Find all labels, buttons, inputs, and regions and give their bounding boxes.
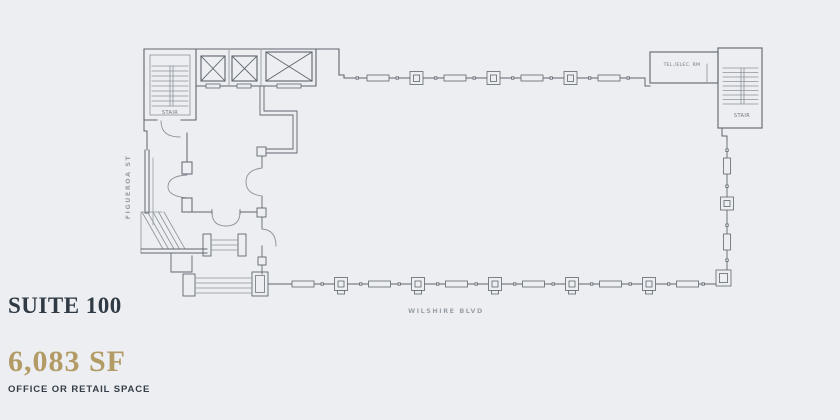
street-label-wilshire: WILSHIRE BLVD <box>408 308 484 315</box>
suite-info-panel: SUITE 100 6,083 SF OFFICE OR RETAIL SPAC… <box>8 294 228 395</box>
south-entry-steps <box>183 272 268 296</box>
north-wall-windows <box>356 72 629 85</box>
left-stair-treads <box>150 55 190 115</box>
suite-title: SUITE 100 <box>8 294 228 317</box>
street-label-figueroa: FIGUEROA ST <box>125 155 132 220</box>
tel-elec-room <box>645 52 718 86</box>
south-wall <box>268 278 716 295</box>
storefront-west <box>145 150 153 225</box>
tel-elec-label: TEL./ELEC. RM <box>663 62 701 68</box>
interior-partitions <box>168 133 256 226</box>
stair-left-label: STAIR <box>162 110 178 116</box>
vestibule-steps <box>203 234 246 256</box>
stair-right-label: STAIR <box>734 113 750 119</box>
suite-area: 6,083 SF <box>8 347 228 377</box>
plan-labels: STAIR STAIR TEL./ELEC. RM FIGUEROA ST WI… <box>125 62 750 315</box>
east-wall <box>716 140 734 286</box>
corner-entry-steps <box>141 212 207 272</box>
north-wall <box>316 49 645 78</box>
elevator-bank <box>196 49 316 88</box>
right-stair <box>718 48 762 140</box>
right-stair-treads <box>723 68 758 104</box>
core-partition-zigzag <box>246 86 297 274</box>
left-stair-door-arc <box>161 121 180 137</box>
floorplan-page: STAIR STAIR TEL./ELEC. RM FIGUEROA ST WI… <box>0 0 840 420</box>
suite-descriptor: OFFICE OR RETAIL SPACE <box>8 384 228 395</box>
